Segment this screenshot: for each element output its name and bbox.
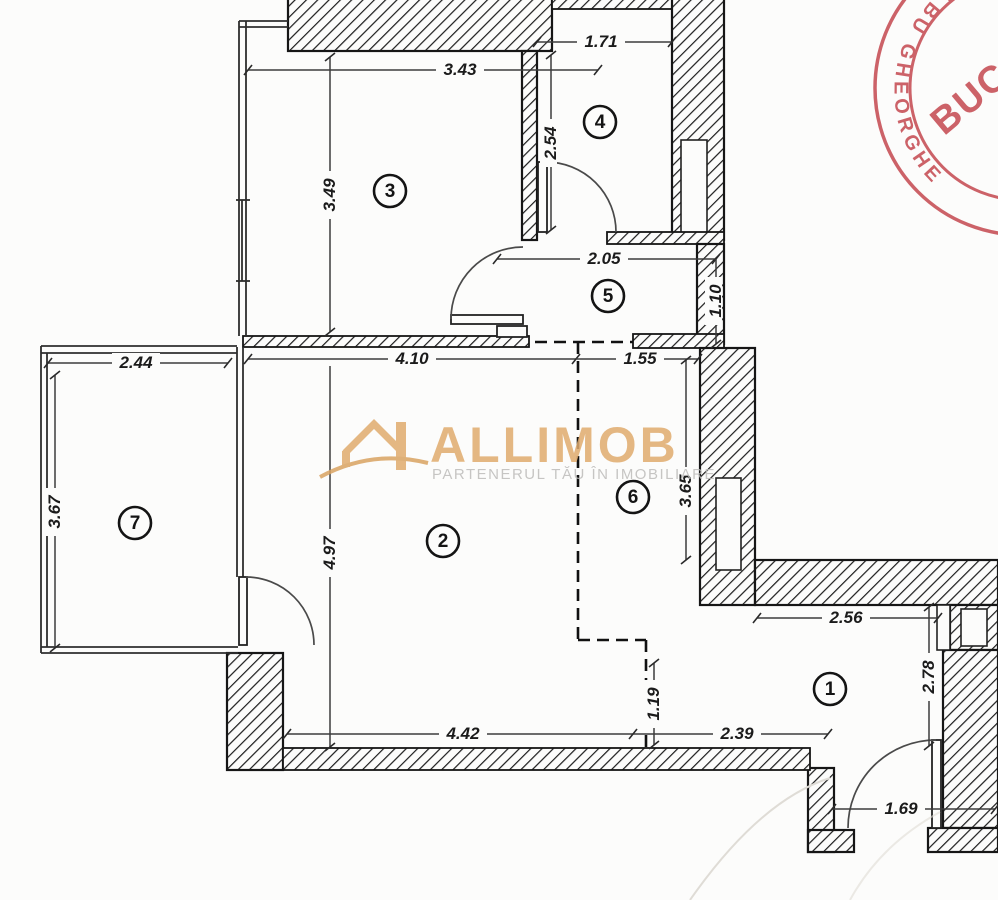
svg-text:3: 3 — [385, 181, 396, 202]
wall-left-block — [227, 653, 283, 770]
dimension-label: 1.69 — [877, 799, 925, 818]
dimension-label: 2.56 — [822, 608, 870, 627]
dimension-label: 2.54 — [540, 119, 560, 167]
watermark-house-icon — [396, 422, 406, 470]
dimension-label: 2.05 — [580, 249, 628, 268]
floor-plan-page: 3.43 3.49 1.71 2.54 2.05 1.10 4.10 1.55 … — [0, 0, 998, 900]
door-jamb — [497, 326, 527, 337]
dimension-label: 4.42 — [439, 724, 487, 743]
dimension-label: 2.39 — [713, 724, 761, 743]
floor-plan-drawing: 3.43 3.49 1.71 2.54 2.05 1.10 4.10 1.55 … — [0, 0, 998, 900]
dimension-label: 3.67 — [44, 488, 64, 536]
svg-text:2.56: 2.56 — [828, 608, 863, 627]
stamp: ALBU GHEORGHE BUC — [875, 0, 998, 235]
svg-text:1.55: 1.55 — [623, 349, 657, 368]
wall-top-slab — [288, 0, 552, 51]
svg-text:5: 5 — [603, 286, 614, 307]
door-leaf — [451, 315, 523, 324]
wall-entry-foot — [808, 830, 854, 852]
svg-text:7: 7 — [130, 513, 141, 534]
svg-text:6: 6 — [628, 487, 639, 508]
watermark: ALLIMOB PARTENERUL TĂU ÎN IMOBILIARE — [320, 417, 716, 483]
svg-text:4.10: 4.10 — [394, 349, 429, 368]
svg-text:1.10: 1.10 — [706, 284, 725, 318]
room-label-7: 7 — [119, 507, 151, 539]
door-arc — [451, 247, 523, 319]
dimension-label: 3.43 — [436, 60, 484, 79]
watermark-swoosh — [320, 458, 428, 477]
room-label-1: 1 — [814, 673, 846, 705]
dimension-label: 1.10 — [705, 277, 725, 325]
room-label-3: 3 — [374, 175, 406, 207]
svg-text:1.19: 1.19 — [644, 687, 663, 721]
dimension-label: 3.49 — [319, 171, 339, 219]
svg-text:1.69: 1.69 — [884, 799, 918, 818]
svg-text:4: 4 — [595, 112, 606, 133]
window — [937, 605, 950, 650]
wall-niche — [681, 140, 707, 234]
watermark-tagline: PARTENERUL TĂU ÎN IMOBILIARE — [432, 466, 716, 483]
door-leaf — [239, 577, 247, 645]
wall-room2-room3 — [243, 336, 529, 347]
svg-text:1.71: 1.71 — [584, 32, 617, 51]
svg-text:2: 2 — [438, 531, 449, 552]
dimension-label: 4.10 — [388, 349, 436, 368]
dimension-label: 4.97 — [319, 529, 339, 577]
wall-above-room1 — [755, 560, 998, 605]
room-label-4: 4 — [584, 106, 616, 138]
door-arc — [246, 577, 314, 645]
dimension-label: 2.78 — [918, 653, 938, 701]
watermark-brand: ALLIMOB — [430, 417, 679, 473]
svg-text:2.78: 2.78 — [919, 660, 938, 695]
watermark-house-icon — [345, 424, 399, 453]
wall-bottom-right — [928, 828, 998, 852]
svg-text:2.54: 2.54 — [541, 126, 560, 161]
svg-text:2.39: 2.39 — [719, 724, 754, 743]
wall-room3-room4 — [522, 51, 537, 240]
wall-under-room5 — [633, 334, 724, 348]
svg-text:1: 1 — [825, 679, 836, 700]
door-leaf — [538, 162, 547, 232]
room-label-6: 6 — [617, 481, 649, 513]
door-arc — [546, 162, 616, 232]
stamp-center-text: BUC — [923, 54, 998, 143]
svg-text:3.49: 3.49 — [320, 178, 339, 212]
dimension-label: 1.55 — [616, 349, 664, 368]
svg-text:2.05: 2.05 — [586, 249, 621, 268]
wall-right-room1 — [943, 650, 998, 828]
wall-bottom-room2 — [283, 748, 810, 770]
svg-text:2.44: 2.44 — [118, 353, 153, 372]
svg-text:4.42: 4.42 — [445, 724, 480, 743]
wall-niche — [716, 478, 741, 570]
dimension-label: 1.19 — [643, 680, 663, 728]
wall-niche — [961, 609, 987, 646]
dashed-partitions — [535, 342, 646, 748]
room-label-5: 5 — [592, 280, 624, 312]
scan-artifact — [850, 812, 940, 900]
dimension-label: 1.71 — [577, 32, 625, 51]
svg-text:3.43: 3.43 — [443, 60, 477, 79]
dimension-label: 2.44 — [112, 353, 160, 372]
svg-text:4.97: 4.97 — [320, 535, 339, 571]
room-label-2: 2 — [427, 525, 459, 557]
wall-under-room4 — [607, 232, 724, 244]
wall-top-strip — [552, 0, 672, 9]
svg-text:3.67: 3.67 — [45, 494, 64, 529]
